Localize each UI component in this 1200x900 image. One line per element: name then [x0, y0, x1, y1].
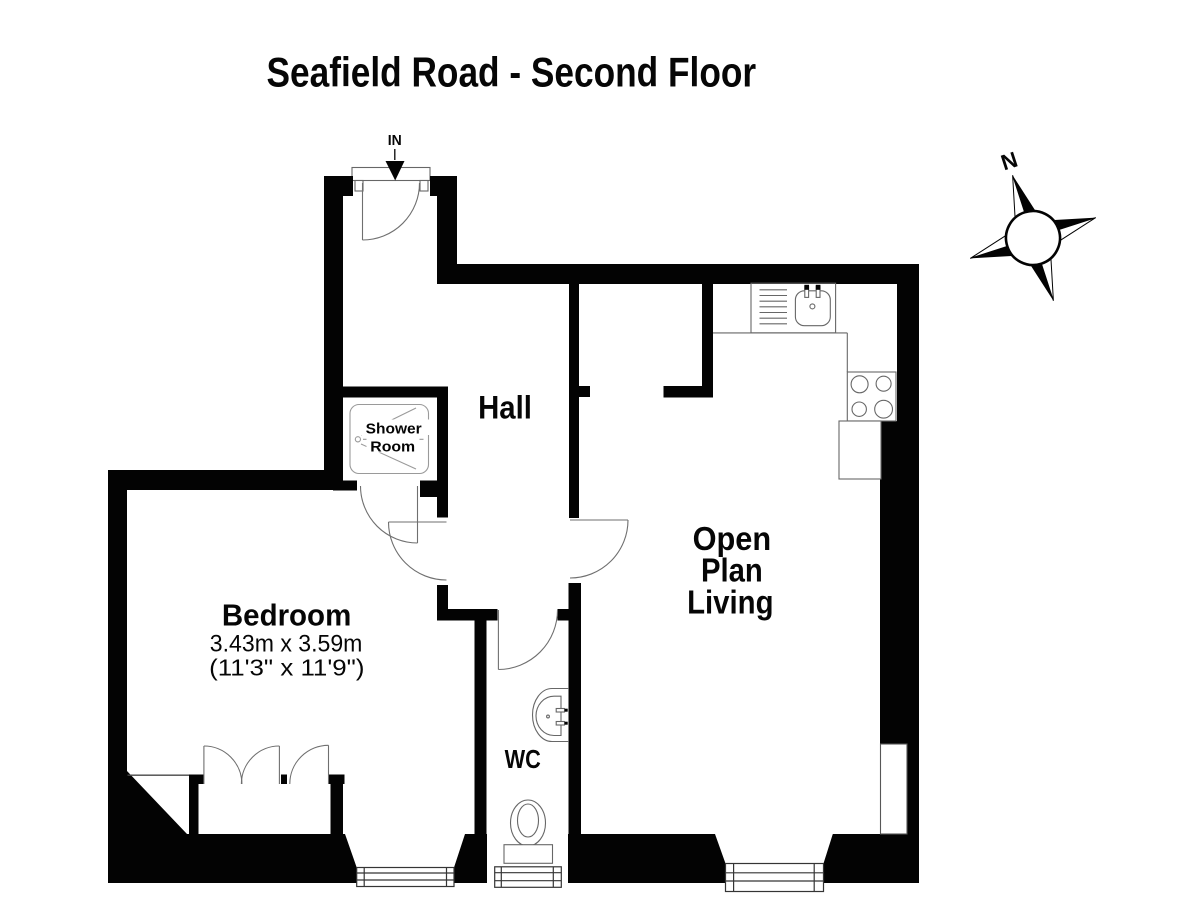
svg-text:Seafield Road - Second Floor: Seafield Road - Second Floor: [267, 48, 757, 95]
svg-text:WC: WC: [505, 746, 541, 774]
svg-text:Shower: Shower: [366, 421, 422, 438]
svg-text:Living: Living: [687, 584, 773, 622]
svg-text:(11'3" x 11'9"): (11'3" x 11'9"): [209, 654, 364, 680]
svg-text:Bedroom: Bedroom: [222, 597, 351, 632]
svg-text:Room: Room: [370, 438, 415, 455]
svg-text:IN: IN: [388, 132, 402, 149]
svg-text:Hall: Hall: [478, 389, 532, 425]
